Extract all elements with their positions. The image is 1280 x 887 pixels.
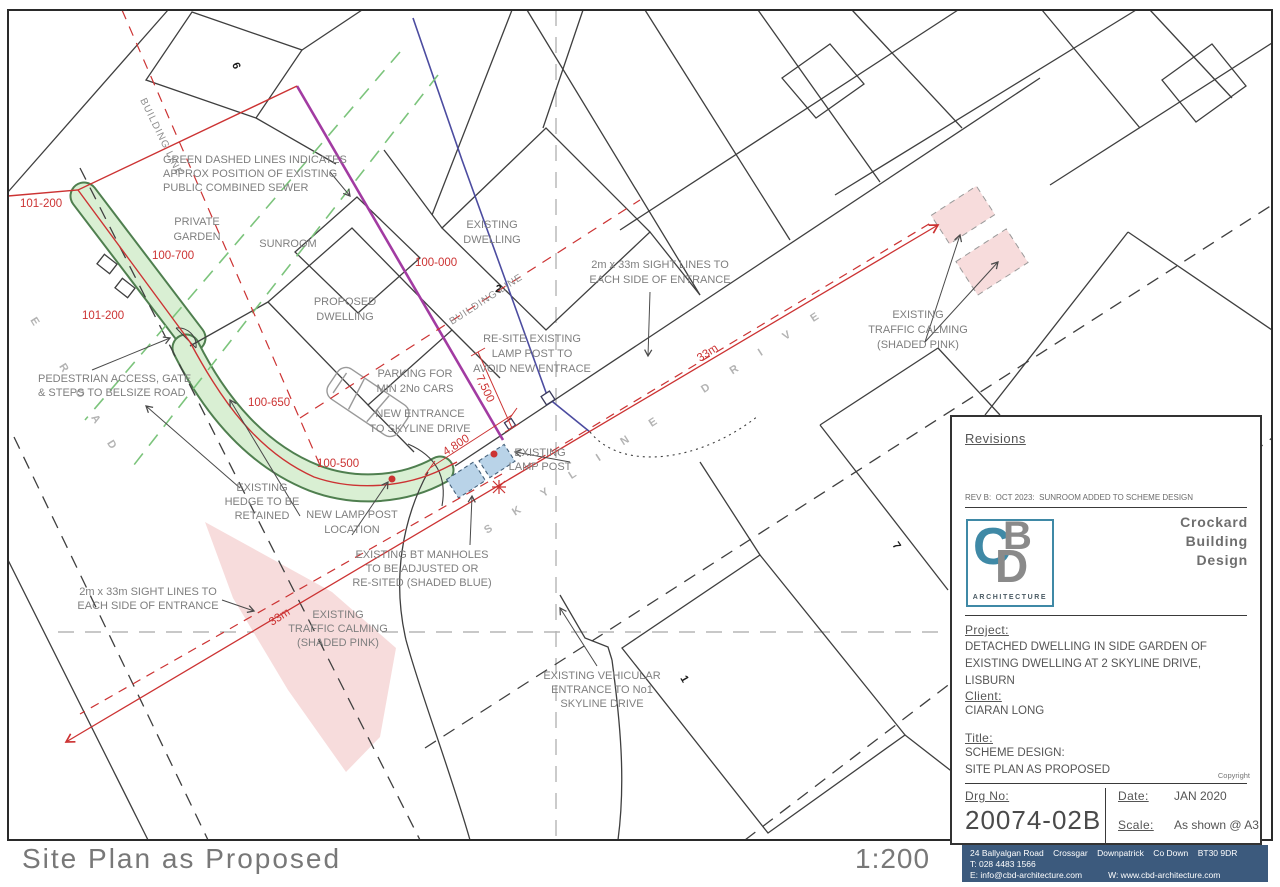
svg-text:PUBLIC COMBINED SEWER: PUBLIC COMBINED SEWER <box>163 182 309 194</box>
svg-text:EACH SIDE OF ENTRANCE: EACH SIDE OF ENTRANCE <box>589 274 730 286</box>
svg-text:TO BE ADJUSTED OR: TO BE ADJUSTED OR <box>366 563 479 575</box>
project-line: DETACHED DWELLING IN SIDE GARDEN OF <box>965 641 1207 653</box>
vertical-divider <box>1105 788 1106 848</box>
address-bar: 24 Ballyalgan Road Crossgar Downpatrick … <box>962 845 1268 882</box>
project-line: LISBURN <box>965 675 1015 687</box>
svg-text:PRIVATE: PRIVATE <box>174 216 219 228</box>
drawing-sheet: SKYLINE DRIVE E ROAD 6 2 7 1 BUILDING LI… <box>0 0 1280 887</box>
svg-text:TO SKYLINE DRIVE: TO SKYLINE DRIVE <box>369 423 470 435</box>
svg-text:BUILDING LINE: BUILDING LINE <box>448 272 525 328</box>
svg-text:EXISTING: EXISTING <box>236 482 287 494</box>
svg-text:PROPOSED: PROPOSED <box>314 296 376 308</box>
svg-text:100-650: 100-650 <box>248 397 290 409</box>
website-text: W: www.cbd-architecture.com <box>1108 870 1220 880</box>
svg-text:TRAFFIC CALMING: TRAFFIC CALMING <box>288 623 388 635</box>
svg-text:EXISTING: EXISTING <box>892 309 943 321</box>
svg-text:100-000: 100-000 <box>415 257 457 269</box>
svg-text:NEW LAMP POST: NEW LAMP POST <box>306 509 398 521</box>
house-number-6: 6 <box>229 61 242 71</box>
scale-value: As shown @ A3 <box>1174 818 1259 832</box>
svg-text:101-200: 101-200 <box>82 310 124 322</box>
svg-text:LAMP POST TO: LAMP POST TO <box>492 348 573 360</box>
divider-line <box>965 783 1247 784</box>
logo-letter-d: D <box>995 539 1028 593</box>
phone-line: T: 028 4483 1566 <box>970 859 1260 869</box>
svg-text:EXISTING BT MANHOLES: EXISTING BT MANHOLES <box>355 549 488 561</box>
client-label: Client: <box>965 689 1002 703</box>
svg-text:(SHADED PINK): (SHADED PINK) <box>877 339 959 351</box>
svg-text:HEDGE TO BE: HEDGE TO BE <box>225 496 300 508</box>
address-line: 24 Ballyalgan Road Crossgar Downpatrick … <box>970 848 1260 858</box>
svg-text:PARKING FOR: PARKING FOR <box>378 368 453 380</box>
svg-text:ENTRANCE TO No1: ENTRANCE TO No1 <box>551 684 653 696</box>
revisions-heading: Revisions <box>965 431 1026 446</box>
grid-lines <box>58 10 948 840</box>
plan-caption: Site Plan as Proposed <box>22 843 341 875</box>
drg-no-label: Drg No: <box>965 789 1009 803</box>
title-block: Revisions REV B: OCT 2023: SUNROOM ADDED… <box>950 415 1262 845</box>
svg-text:EACH SIDE OF ENTRANCE: EACH SIDE OF ENTRANCE <box>77 600 218 612</box>
svg-text:(SHADED PINK): (SHADED PINK) <box>297 637 379 649</box>
svg-text:EXISTING: EXISTING <box>466 219 517 231</box>
date-label: Date: <box>1118 789 1149 803</box>
plan-scale: 1:200 <box>855 843 930 875</box>
svg-text:2m x 33m SIGHT LINES TO: 2m x 33m SIGHT LINES TO <box>79 586 217 598</box>
divider-line <box>965 615 1247 616</box>
project-label: Project: <box>965 623 1009 637</box>
svg-text:SUNROOM: SUNROOM <box>259 238 316 250</box>
divider-line <box>965 507 1247 508</box>
svg-text:DWELLING: DWELLING <box>463 234 520 246</box>
svg-text:EXISTING: EXISTING <box>514 447 565 459</box>
company-name: Crockard Building Design <box>1180 513 1248 570</box>
svg-text:7,500: 7,500 <box>473 373 496 404</box>
scale-label: Scale: <box>1118 818 1154 832</box>
house-number-7: 7 <box>890 540 903 552</box>
date-value: JAN 2020 <box>1174 789 1227 803</box>
svg-text:RE-SITED (SHADED BLUE): RE-SITED (SHADED BLUE) <box>352 577 491 589</box>
annotation-labels: GREEN DASHED LINES INDICATES APPROX POSI… <box>38 154 968 710</box>
svg-text:SKYLINE DRIVE: SKYLINE DRIVE <box>560 698 643 710</box>
svg-text:DWELLING: DWELLING <box>316 311 373 323</box>
svg-text:TRAFFIC CALMING: TRAFFIC CALMING <box>868 324 968 336</box>
drawing-title-line: SCHEME DESIGN: <box>965 747 1065 759</box>
svg-text:& STEPS TO BELSIZE ROAD: & STEPS TO BELSIZE ROAD <box>38 387 186 399</box>
project-line: EXISTING DWELLING AT 2 SKYLINE DRIVE, <box>965 658 1201 670</box>
svg-text:NEW ENTRANCE: NEW ENTRANCE <box>375 408 464 420</box>
svg-text:RE-SITE EXISTING: RE-SITE EXISTING <box>483 333 581 345</box>
svg-text:EXISTING VEHICULAR: EXISTING VEHICULAR <box>543 670 660 682</box>
svg-text:LOCATION: LOCATION <box>324 524 379 536</box>
bt-manholes <box>447 444 515 497</box>
svg-text:100-700: 100-700 <box>152 250 194 262</box>
svg-text:GARDEN: GARDEN <box>173 231 220 243</box>
copyright-note: Copyright <box>1218 771 1250 780</box>
svg-text:2m x 33m SIGHT LINES TO: 2m x 33m SIGHT LINES TO <box>591 259 729 271</box>
svg-text:101-200: 101-200 <box>20 198 62 210</box>
svg-text:PEDESTRIAN ACCESS, GATE: PEDESTRIAN ACCESS, GATE <box>38 373 191 385</box>
svg-text:GREEN DASHED LINES INDICATES: GREEN DASHED LINES INDICATES <box>163 154 347 166</box>
svg-text:LAMP POST: LAMP POST <box>509 461 572 473</box>
drawing-number: 20074-02B <box>965 805 1101 836</box>
svg-text:APPROX POSITION OF EXISTING: APPROX POSITION OF EXISTING <box>163 168 337 180</box>
svg-text:RETAINED: RETAINED <box>235 510 290 522</box>
svg-text:100-500: 100-500 <box>317 458 359 470</box>
title-label: Title: <box>965 731 993 745</box>
svg-text:MIN 2No CARS: MIN 2No CARS <box>376 383 453 395</box>
revision-note: REV B: OCT 2023: SUNROOM ADDED TO SCHEME… <box>965 493 1193 502</box>
email-text: E: info@cbd-architecture.com <box>970 870 1082 880</box>
svg-text:EXISTING: EXISTING <box>312 609 363 621</box>
logo-architecture-text: ARCHITECTURE <box>968 594 1052 601</box>
drawing-title-line: SITE PLAN AS PROPOSED <box>965 764 1110 776</box>
cbd-architecture-logo: C B D ARCHITECTURE <box>966 519 1054 607</box>
house-number-1: 1 <box>677 674 690 685</box>
svg-text:4,800: 4,800 <box>441 433 472 459</box>
client-name: CIARAN LONG <box>965 705 1044 717</box>
svg-text:AVOID NEW ENTRACE: AVOID NEW ENTRACE <box>473 363 591 375</box>
